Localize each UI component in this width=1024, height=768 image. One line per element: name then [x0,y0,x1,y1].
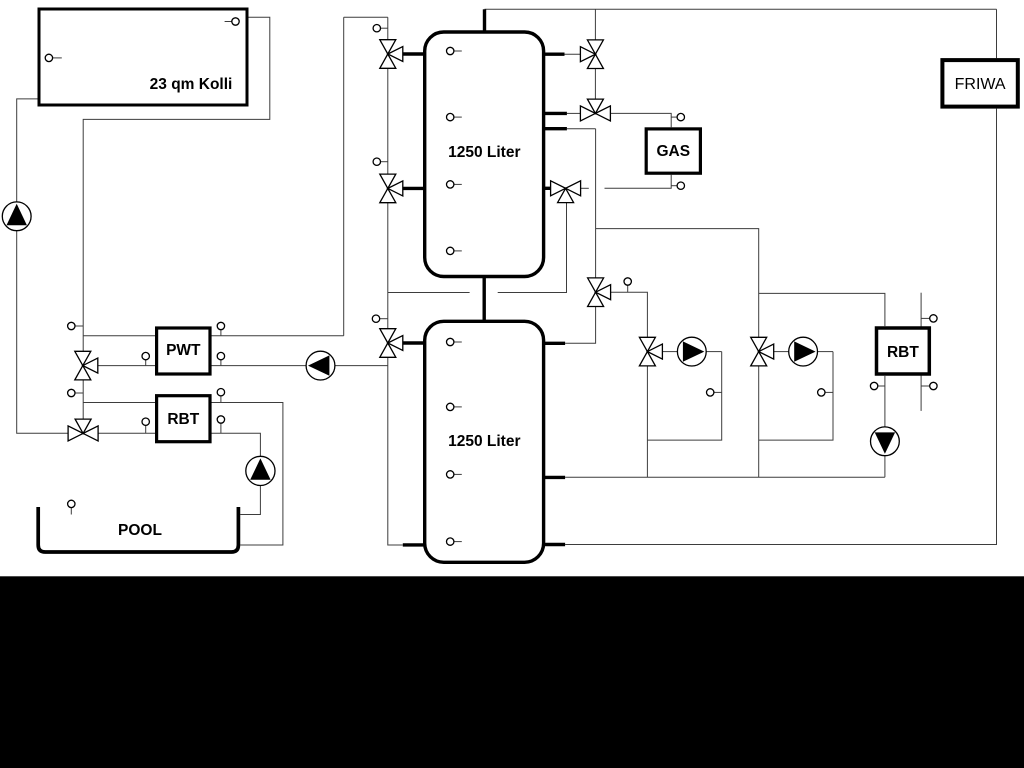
svg-text:23 qm Kolli: 23 qm Kolli [150,76,233,93]
svg-text:RBT: RBT [167,411,199,428]
svg-text:POOL: POOL [118,522,162,539]
svg-text:RBT: RBT [887,344,919,361]
svg-text:PWT: PWT [166,342,201,359]
svg-text:1250 Liter: 1250 Liter [448,433,520,450]
svg-text:1250 Liter: 1250 Liter [448,144,520,161]
svg-text:GAS: GAS [657,143,691,160]
svg-text:FRIWA: FRIWA [955,76,1006,93]
